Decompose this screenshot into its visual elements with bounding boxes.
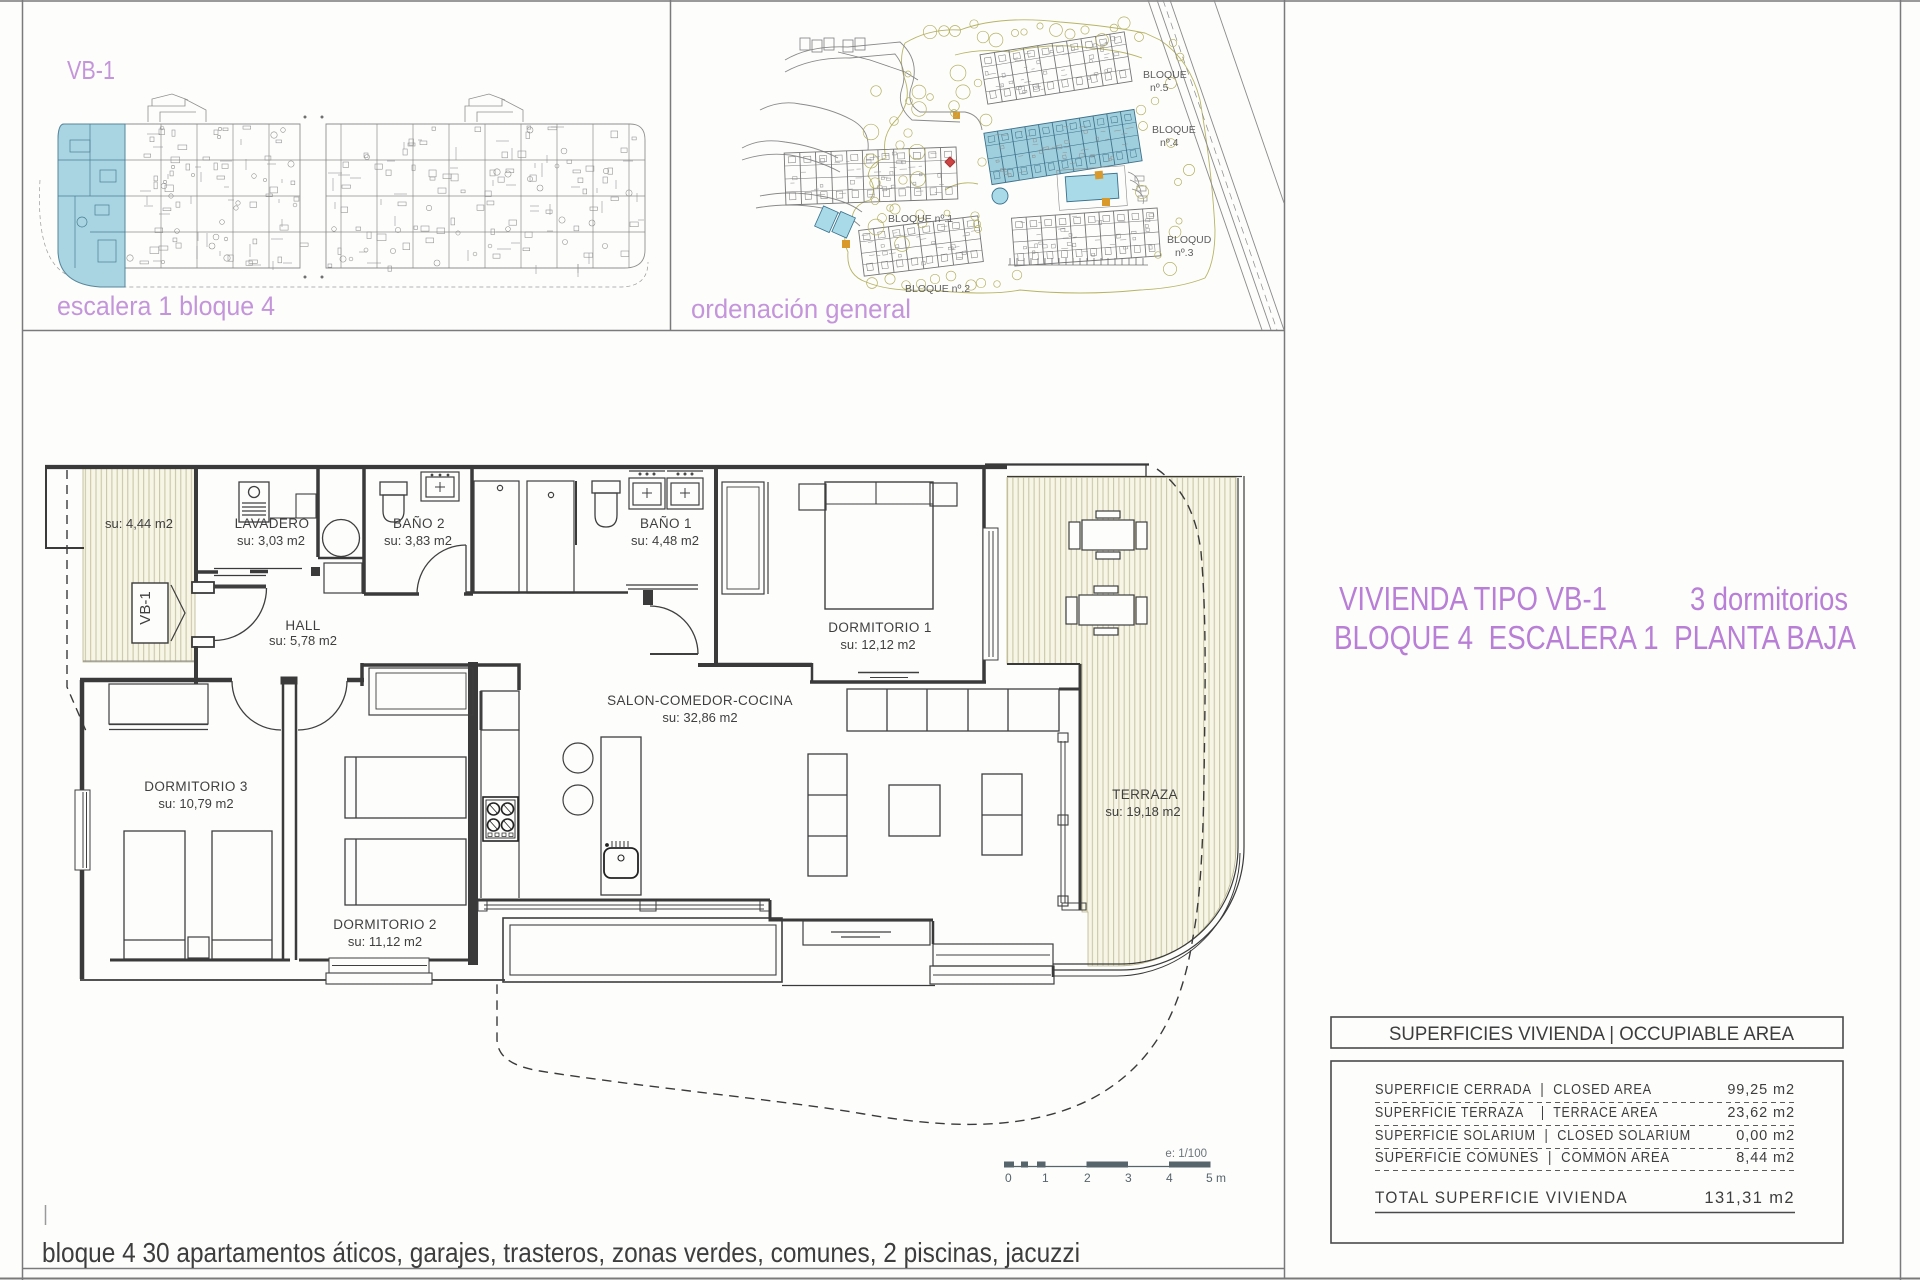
svg-text:VIVIENDA TIPO VB-1: VIVIENDA TIPO VB-1 [1339,580,1607,617]
svg-text:DORMITORIO 2: DORMITORIO 2 [333,917,437,932]
svg-text:SUPERFICIE TERRAZA | TERRA: SUPERFICIE TERRAZA | TERRACE AREA [1375,1105,1658,1121]
svg-text:BLOQUD: BLOQUD [1167,234,1212,246]
svg-text:ordenación general: ordenación general [691,294,911,324]
svg-text:su: 11,12 m2: su: 11,12 m2 [348,934,422,949]
svg-text:TOTAL SUPERFICIE VIVIENDA: TOTAL SUPERFICIE VIVIENDA [1375,1189,1628,1207]
svg-text:SALON-COMEDOR-COCINA: SALON-COMEDOR-COCINA [607,693,793,708]
svg-text:nº.5: nº.5 [1150,82,1169,94]
svg-text:TERRAZA: TERRAZA [1112,787,1178,802]
svg-text:5 m: 5 m [1206,1171,1226,1185]
svg-text:3: 3 [1125,1171,1132,1185]
svg-text:3 dormitorios: 3 dormitorios [1690,581,1848,617]
svg-text:SUPERFICIE COMUNES | COMMON: SUPERFICIE COMUNES | COMMON AREA [1375,1150,1670,1166]
svg-text:su: 19,18 m2: su: 19,18 m2 [1105,804,1180,819]
svg-text:nº.4: nº.4 [1160,137,1179,149]
svg-text:su: 4,48 m2: su: 4,48 m2 [631,533,699,548]
svg-text:su: 12,12 m2: su: 12,12 m2 [840,637,915,652]
svg-text:DORMITORIO 3: DORMITORIO 3 [144,779,248,794]
svg-text:escalera 1 bloque 4: escalera 1 bloque 4 [57,291,275,321]
svg-text:VB-1: VB-1 [137,591,154,624]
svg-text:su: 3,03 m2: su: 3,03 m2 [237,533,305,548]
svg-text:bloque 4 30 apartamentos ático: bloque 4 30 apartamentos áticos, garajes… [42,1237,1080,1268]
svg-text:BLOQUE 4 ESCALERA 1 PLANTA B: BLOQUE 4 ESCALERA 1 PLANTA BAJA [1334,619,1856,656]
svg-text:su: 5,78 m2: su: 5,78 m2 [269,633,337,648]
svg-text:23,62 m2: 23,62 m2 [1727,1105,1795,1121]
svg-text:nº.3: nº.3 [1175,247,1194,259]
svg-text:131,31 m2: 131,31 m2 [1704,1189,1795,1207]
svg-text:BAÑO 1: BAÑO 1 [640,516,692,531]
svg-text:su: 3,83 m2: su: 3,83 m2 [384,533,452,548]
svg-text:su: 4,44 m2: su: 4,44 m2 [105,516,173,531]
svg-text:BLOQUE: BLOQUE [1143,69,1187,81]
svg-text:DORMITORIO 1: DORMITORIO 1 [828,620,932,635]
svg-text:99,25 m2: 99,25 m2 [1727,1082,1795,1098]
svg-text:BLOQUE nº.1: BLOQUE nº.1 [888,213,953,225]
svg-text:SUPERFICIES VIVIENDA | OCCUPIA: SUPERFICIES VIVIENDA | OCCUPIABLE AREA [1389,1024,1794,1045]
svg-text:BLOQUE: BLOQUE [1152,124,1196,136]
svg-text:8,44 m2: 8,44 m2 [1736,1150,1795,1166]
svg-text:4: 4 [1166,1171,1173,1185]
svg-text:su: 10,79 m2: su: 10,79 m2 [158,796,233,811]
svg-text:su: 32,86 m2: su: 32,86 m2 [662,710,737,725]
svg-text:SUPERFICIE SOLARIUM | CLOSED: SUPERFICIE SOLARIUM | CLOSED SOLARIUM [1375,1128,1691,1144]
svg-text:BAÑO 2: BAÑO 2 [393,516,445,531]
svg-text:LAVADERO: LAVADERO [235,516,310,531]
svg-text:VB-1: VB-1 [67,55,115,85]
svg-text:BLOQUE nº.2: BLOQUE nº.2 [905,283,970,295]
svg-text:0,00 m2: 0,00 m2 [1736,1128,1795,1144]
svg-text:1: 1 [1042,1171,1049,1185]
svg-text:SUPERFICIE CERRADA | CLOSED: SUPERFICIE CERRADA | CLOSED AREA [1375,1082,1652,1098]
svg-text:0: 0 [1005,1171,1012,1185]
svg-text:2: 2 [1084,1171,1091,1185]
svg-text:e: 1/100: e: 1/100 [1165,1148,1207,1160]
svg-text:HALL: HALL [285,618,320,633]
